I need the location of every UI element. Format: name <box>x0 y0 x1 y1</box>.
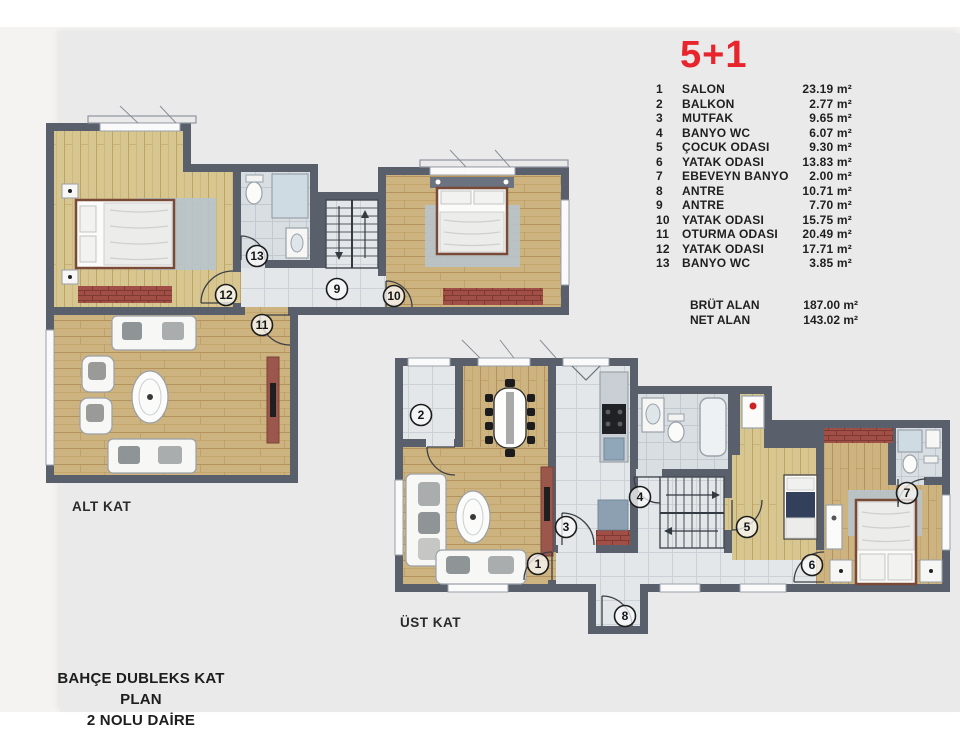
marker-1: 1 <box>528 554 549 575</box>
marker-8: 8 <box>615 606 636 627</box>
marker-5: 5 <box>737 517 758 538</box>
caption-line1: BAHÇE DUBLEKS KAT PLAN <box>36 668 246 710</box>
room-9-floor <box>241 268 378 307</box>
legend-row: 13BANYO WC3.85 m² <box>656 256 852 271</box>
ust-kat-plan: 2 1 3 4 5 6 7 <box>395 340 950 634</box>
plan-caption: BAHÇE DUBLEKS KAT PLAN 2 NOLU DAİRE <box>36 668 246 731</box>
marker-3: 3 <box>556 517 577 538</box>
svg-text:6: 6 <box>809 558 816 572</box>
legend-row: 10YATAK ODASI15.75 m² <box>656 213 852 228</box>
marker-10: 10 <box>384 286 405 307</box>
bed-room10 <box>425 177 520 267</box>
brick-strip-room6 <box>824 428 893 443</box>
window-ticks <box>462 340 556 358</box>
bed-room12 <box>62 184 216 284</box>
upper-floor-label: ÜST KAT <box>400 615 461 630</box>
legend-row: 8ANTRE10.71 m² <box>656 184 852 199</box>
marker-13: 13 <box>247 246 268 267</box>
svg-text:2: 2 <box>418 408 425 422</box>
door-gap-4 <box>636 469 662 477</box>
plan-type-title: 5+1 <box>680 34 747 77</box>
legend-row: 11OTURMA ODASI20.49 m² <box>656 227 852 242</box>
legend-row: 9ANTRE7.70 m² <box>656 198 852 213</box>
brick-strip-room10 <box>443 288 543 305</box>
door-gap-5 <box>724 498 732 530</box>
svg-text:7: 7 <box>904 486 911 500</box>
caption-line2: 2 NOLU DAİRE <box>36 710 246 731</box>
svg-text:12: 12 <box>219 288 233 302</box>
legend-row: 1SALON23.19 m² <box>656 82 852 97</box>
totals-row: NET ALAN143.02 m² <box>690 313 858 328</box>
svg-text:10: 10 <box>387 289 401 303</box>
page: 13 12 9 10 11 <box>0 0 960 742</box>
kitchen-fixtures <box>598 372 628 530</box>
legend-row: 3MUTFAK9.65 m² <box>656 111 852 126</box>
legend-row: 2BALKON2.77 m² <box>656 97 852 112</box>
svg-text:5: 5 <box>744 520 751 534</box>
marker-11: 11 <box>252 315 273 336</box>
marker-6: 6 <box>802 555 823 576</box>
lower-floor-label: ALT KAT <box>72 499 131 514</box>
brick-strip-kitchen <box>596 530 630 545</box>
door-gap-3 <box>558 545 596 553</box>
svg-text:8: 8 <box>622 609 629 623</box>
room-legend: 1SALON23.19 m² 2BALKON2.77 m² 3MUTFAK9.6… <box>656 82 852 271</box>
legend-row: 6YATAK ODASI13.83 m² <box>656 155 852 170</box>
marker-12: 12 <box>216 285 237 306</box>
room-2-floor <box>403 366 455 439</box>
rail <box>420 160 568 167</box>
legend-row: 5ÇOCUK ODASI9.30 m² <box>656 140 852 155</box>
legend-row: 4BANYO WC6.07 m² <box>656 126 852 141</box>
door-gap-2 <box>426 439 454 447</box>
marker-9: 9 <box>327 279 348 300</box>
marker-2: 2 <box>411 405 432 426</box>
svg-text:4: 4 <box>637 490 644 504</box>
svg-text:9: 9 <box>334 282 341 296</box>
svg-text:11: 11 <box>256 318 269 332</box>
legend-row: 7EBEVEYN BANYO2.00 m² <box>656 169 852 184</box>
door-gap-11 <box>245 307 288 315</box>
svg-text:13: 13 <box>250 249 264 263</box>
svg-text:1: 1 <box>535 557 542 571</box>
svg-text:3: 3 <box>563 520 570 534</box>
marker-4: 4 <box>630 487 651 508</box>
area-totals: BRÜT ALAN187.00 m² NET ALAN143.02 m² <box>690 298 858 327</box>
totals-row: BRÜT ALAN187.00 m² <box>690 298 858 313</box>
rail <box>88 116 196 123</box>
brick-strip-room12 <box>78 286 172 303</box>
legend-row: 12YATAK ODASI17.71 m² <box>656 242 852 257</box>
marker-7: 7 <box>897 483 918 504</box>
